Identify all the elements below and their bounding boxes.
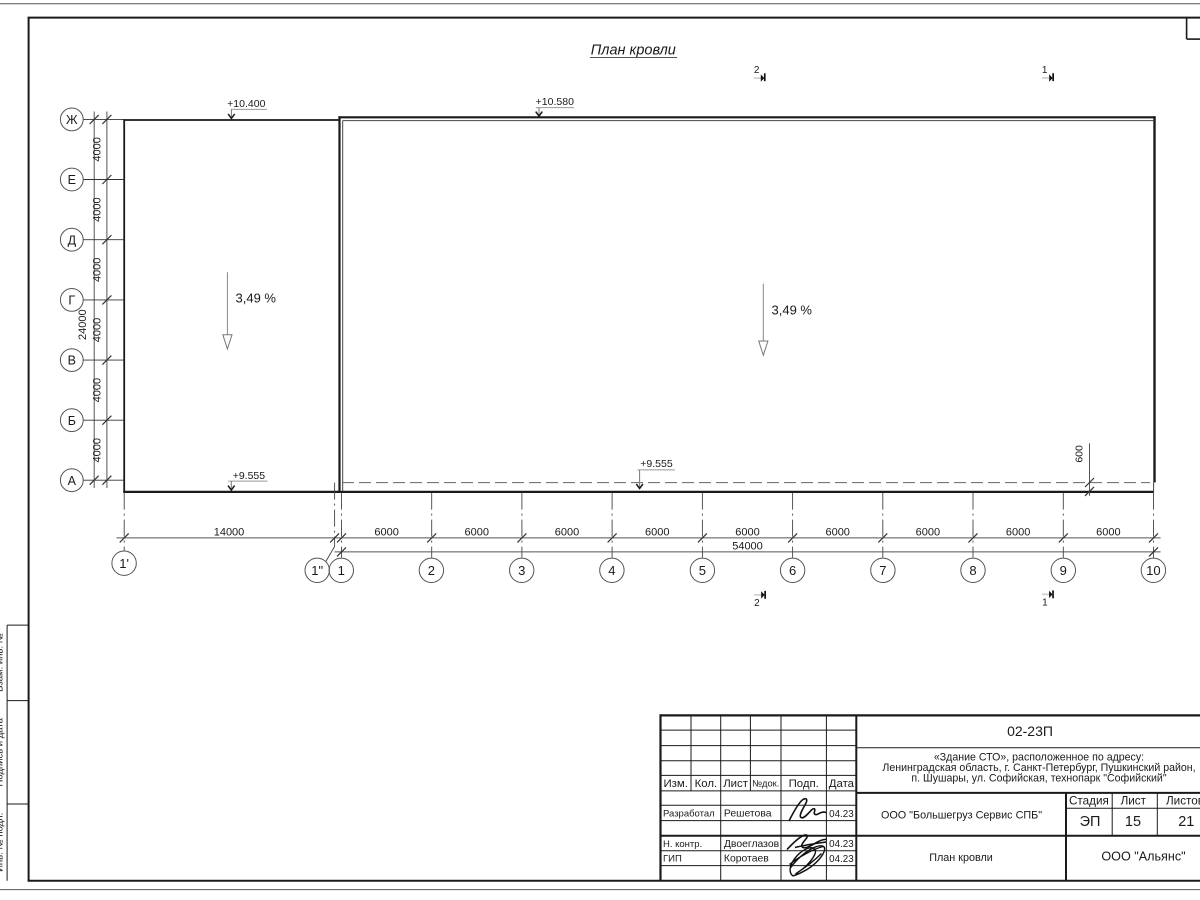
svg-text:15: 15 bbox=[1125, 814, 1141, 830]
svg-text:14000: 14000 bbox=[214, 526, 245, 538]
svg-text:В: В bbox=[68, 354, 76, 368]
svg-text:Подпись и дата: Подпись и дата bbox=[0, 717, 6, 786]
svg-text:Изм.: Изм. bbox=[663, 778, 687, 790]
svg-text:№док.: №док. bbox=[752, 778, 779, 788]
svg-text:1": 1" bbox=[311, 563, 323, 578]
svg-text:Разработал: Разработал bbox=[663, 809, 715, 820]
svg-text:9: 9 bbox=[1060, 563, 1067, 578]
svg-text:Инв. № подл.: Инв. № подл. bbox=[0, 813, 6, 872]
svg-text:Решетова: Решетова bbox=[724, 809, 772, 820]
svg-text:Н. контр.: Н. контр. bbox=[663, 839, 702, 850]
svg-text:600: 600 bbox=[1073, 445, 1085, 463]
svg-text:6000: 6000 bbox=[374, 526, 398, 538]
svg-text:Стадия: Стадия bbox=[1069, 795, 1109, 808]
svg-text:План кровли: План кровли bbox=[591, 43, 676, 59]
svg-text:Лист: Лист bbox=[723, 778, 749, 790]
svg-text:24000: 24000 bbox=[77, 309, 89, 340]
svg-text:ЭП: ЭП bbox=[1080, 814, 1101, 830]
svg-text:Кол.: Кол. bbox=[695, 778, 718, 790]
svg-text:6: 6 bbox=[789, 563, 796, 578]
svg-text:А: А bbox=[68, 474, 77, 488]
svg-text:04.23: 04.23 bbox=[829, 809, 854, 820]
svg-text:4000: 4000 bbox=[92, 438, 104, 462]
svg-text:Дата: Дата bbox=[829, 778, 855, 790]
svg-text:Листов: Листов bbox=[1166, 795, 1200, 808]
svg-text:2: 2 bbox=[754, 598, 760, 609]
svg-text:Д: Д bbox=[68, 233, 77, 247]
svg-text:6000: 6000 bbox=[825, 526, 849, 538]
svg-text:4000: 4000 bbox=[92, 137, 104, 161]
svg-text:6000: 6000 bbox=[645, 526, 669, 538]
svg-text:Б: Б bbox=[68, 414, 76, 428]
svg-text:Двоеглазов: Двоеглазов bbox=[724, 839, 780, 850]
svg-text:1': 1' bbox=[119, 556, 129, 571]
svg-text:4000: 4000 bbox=[92, 258, 104, 282]
svg-text:04.23: 04.23 bbox=[829, 839, 854, 850]
svg-text:ООО "Альянс": ООО "Альянс" bbox=[1101, 850, 1185, 864]
svg-text:6000: 6000 bbox=[735, 526, 759, 538]
svg-text:п. Шушары, ул. Софийская, техн: п. Шушары, ул. Софийская, технопарк "Соф… bbox=[911, 772, 1166, 784]
svg-text:6000: 6000 bbox=[465, 526, 489, 538]
svg-text:+10.580: +10.580 bbox=[536, 96, 574, 108]
svg-text:3,49 %: 3,49 % bbox=[236, 291, 277, 306]
svg-text:Взам. инв. №: Взам. инв. № bbox=[0, 633, 6, 692]
svg-text:21: 21 bbox=[1178, 814, 1194, 830]
svg-text:Г: Г bbox=[68, 294, 75, 308]
svg-text:5: 5 bbox=[699, 563, 706, 578]
svg-text:6000: 6000 bbox=[1096, 526, 1120, 538]
svg-text:ООО "Большегруз Сервис СПБ": ООО "Большегруз Сервис СПБ" bbox=[881, 809, 1042, 821]
svg-text:4000: 4000 bbox=[92, 378, 104, 402]
svg-text:Ж: Ж bbox=[66, 113, 78, 127]
svg-text:8: 8 bbox=[969, 563, 976, 578]
svg-text:4: 4 bbox=[608, 563, 615, 578]
svg-text:1: 1 bbox=[1042, 598, 1048, 609]
svg-text:1: 1 bbox=[1042, 65, 1048, 76]
svg-text:4000: 4000 bbox=[92, 318, 104, 342]
svg-text:02-23П: 02-23П bbox=[1007, 723, 1053, 739]
svg-text:7: 7 bbox=[879, 563, 886, 578]
svg-text:54000: 54000 bbox=[732, 541, 763, 553]
svg-text:3: 3 bbox=[518, 563, 525, 578]
svg-text:Коротаев: Коротаев bbox=[724, 854, 769, 865]
svg-text:Е: Е bbox=[68, 173, 76, 187]
svg-text:10: 10 bbox=[1146, 563, 1160, 578]
svg-text:3,49 %: 3,49 % bbox=[772, 303, 813, 318]
svg-text:Подп.: Подп. bbox=[789, 778, 819, 790]
svg-text:+10.400: +10.400 bbox=[227, 98, 265, 110]
svg-text:+9.555: +9.555 bbox=[233, 470, 266, 482]
svg-text:1: 1 bbox=[338, 563, 345, 578]
svg-text:+9.555: +9.555 bbox=[640, 458, 673, 470]
svg-text:6000: 6000 bbox=[1006, 526, 1030, 538]
svg-text:04.23: 04.23 bbox=[829, 854, 854, 865]
svg-text:6000: 6000 bbox=[916, 526, 940, 538]
svg-text:2: 2 bbox=[754, 65, 760, 76]
svg-text:4000: 4000 bbox=[92, 197, 104, 221]
svg-text:6000: 6000 bbox=[555, 526, 579, 538]
svg-text:ГИП: ГИП bbox=[663, 854, 682, 865]
svg-text:2: 2 bbox=[428, 563, 435, 578]
svg-text:План кровли: План кровли bbox=[929, 852, 993, 864]
svg-text:Лист: Лист bbox=[1121, 795, 1147, 808]
